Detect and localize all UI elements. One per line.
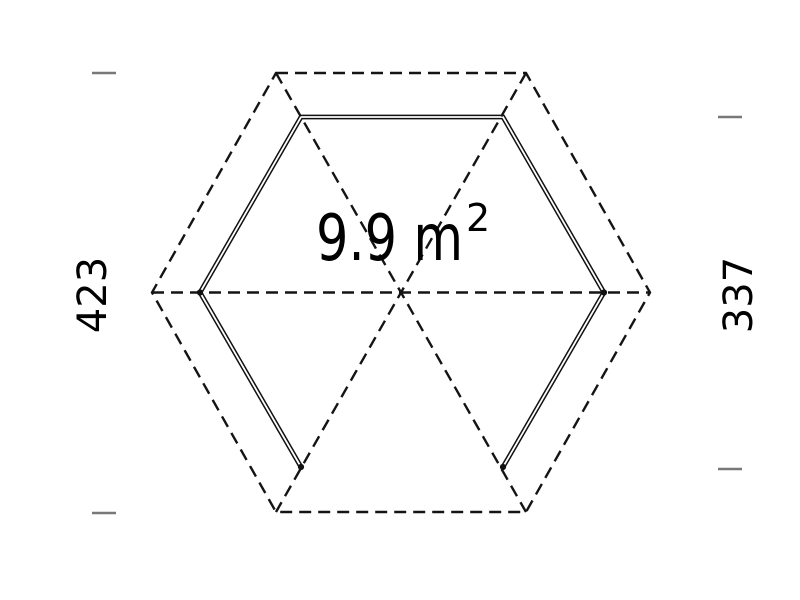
wall-joint-dot-bottom-left bbox=[298, 464, 304, 470]
wall-joint-dot-right bbox=[601, 289, 607, 295]
area-label: 9.9 m 2 bbox=[316, 196, 490, 276]
area-value: 9.9 m bbox=[316, 202, 463, 276]
wall-joint-dot-bottom-right bbox=[500, 464, 506, 470]
labels-group: 9.9 m 2 423 337 bbox=[70, 196, 762, 333]
dimension-label-left: 423 bbox=[70, 257, 116, 333]
dashed-outline-group bbox=[152, 73, 650, 512]
floor-plan-page: 9.9 m 2 423 337 bbox=[0, 0, 800, 600]
wall-joint-dot-left bbox=[197, 289, 203, 295]
dimension-ticks bbox=[92, 73, 742, 513]
dimension-label-right: 337 bbox=[716, 257, 762, 333]
wall-joint-dots bbox=[197, 289, 607, 470]
floor-plan-drawing: 9.9 m 2 423 337 bbox=[0, 0, 800, 600]
area-exponent: 2 bbox=[466, 196, 490, 240]
